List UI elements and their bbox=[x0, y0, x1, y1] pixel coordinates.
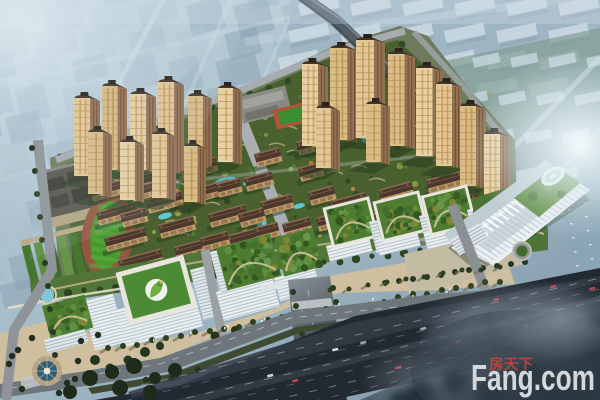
svg-text:Fang.com: Fang.com bbox=[471, 357, 595, 398]
